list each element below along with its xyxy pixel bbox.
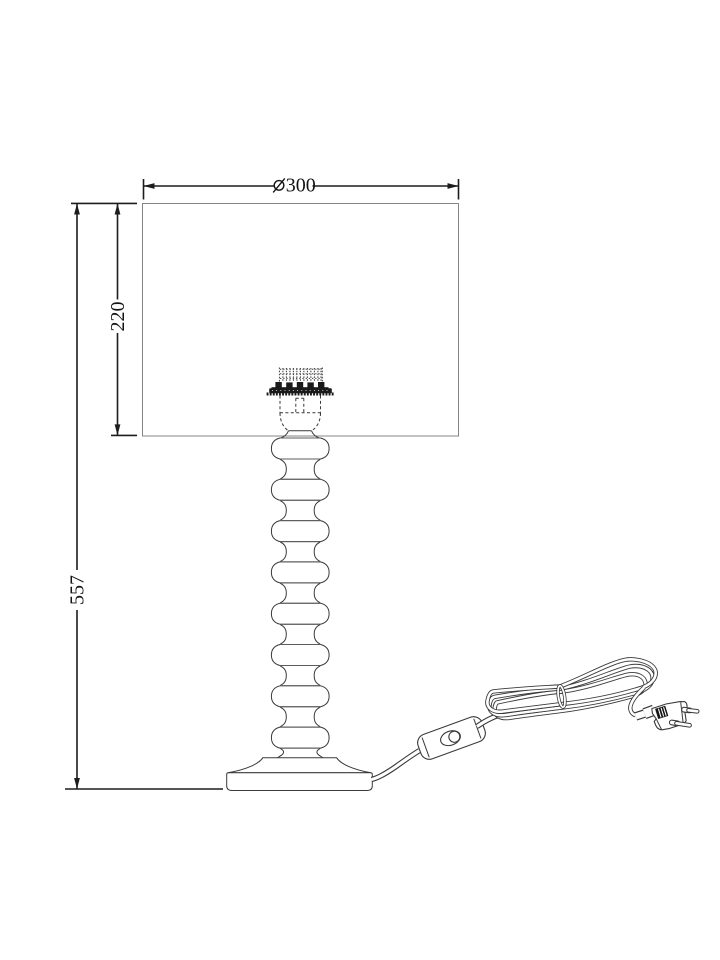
svg-text:220: 220 (107, 302, 129, 332)
svg-text:557: 557 (67, 575, 89, 605)
svg-text:300: 300 (286, 174, 316, 196)
